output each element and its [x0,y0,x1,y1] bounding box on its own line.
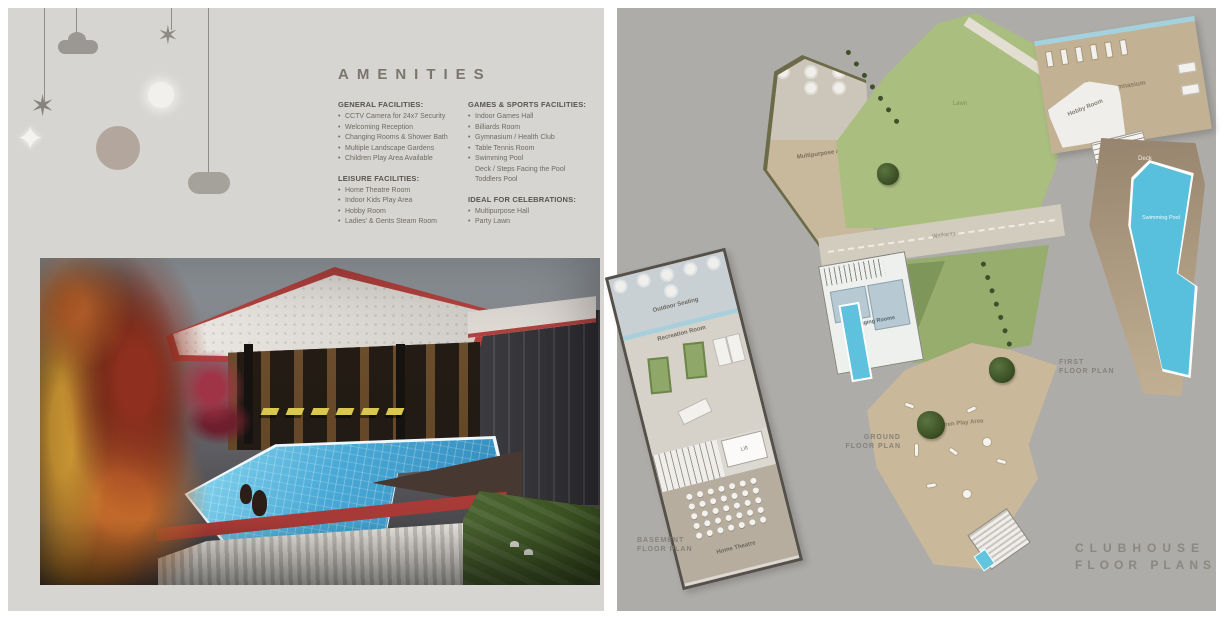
celebrations-list: Multipurpose Hall Party Lawn [468,207,608,228]
amenity-item: Multipurpose Hall [468,207,608,218]
billiards-table [677,398,712,426]
circle-ornament-icon [96,126,140,170]
table-tennis-mat [647,356,672,394]
amenity-item: Swimming Pool [468,154,608,165]
outdoor-tables [613,257,724,309]
amenity-item: Party Lawn [468,217,608,228]
amenities-title: AMENITIES [338,66,492,83]
first-caption: FIRST FLOOR PLAN [1059,358,1115,376]
amenities-column-right: GAMES & SPORTS FACILITIES: Indoor Games … [468,100,608,228]
amenity-item: CCTV Camera for 24x7 Security [338,112,466,123]
cloud-ornament-icon [188,172,230,194]
amenity-item: Home Theatre Room [338,186,466,197]
left-page: ✶ ✶ ✦ AMENITIES GENERAL FACILITIES: CCTV… [8,8,604,611]
cloud-ornament-icon [58,40,98,54]
basement-caption: BASEMENT FLOOR PLAN [637,536,693,554]
lawn-label: Lawn [935,101,985,107]
deck-label: Deck [1125,156,1165,162]
games-sports-heading: GAMES & SPORTS FACILITIES: [468,100,608,109]
first-floor-plan: Gymnasium Hobby Room Deck Swimming Pool … [1037,20,1212,398]
bench [1177,61,1196,74]
sparkle-icon: ✦ [16,122,45,156]
star-ornament-icon: ✶ [157,22,179,48]
tree-icon [877,163,899,185]
amenity-item: Gymnasium / Health Club [468,133,608,144]
bench [1181,83,1200,96]
photo-vignette [40,258,600,585]
clubhouse-pool-photo [40,258,600,585]
walkway-label: Walkway [909,228,979,244]
amenity-item: Multiple Landscape Gardens [338,144,466,155]
amenity-item: Ladies' & Gents Steam Room [338,217,466,228]
hobby-room-label: Hobby Room [1059,95,1112,122]
ground-caption: GROUND FLOOR PLAN [829,433,901,451]
lawn-upper [817,13,1057,228]
amenity-item: Indoor Games Hall [468,112,608,123]
tree-icon [989,357,1015,383]
amenities-column-left: GENERAL FACILITIES: CCTV Camera for 24x7… [338,100,466,228]
brochure-spread: ✶ ✶ ✦ AMENITIES GENERAL FACILITIES: CCTV… [0,0,1224,619]
tree-icon [917,411,945,439]
amenity-item: Welcoming Reception [338,123,466,134]
star-ornament-icon: ✶ [30,92,55,122]
leisure-facilities-heading: LEISURE FACILITIES: [338,174,466,183]
amenity-subitem: Deck / Steps Facing the Pool [468,165,608,176]
games-sports-list: Indoor Games Hall Billiards Room Gymnasi… [468,112,608,186]
amenity-item: Billiards Room [468,123,608,134]
gym-equipment [1046,40,1127,66]
leisure-facilities-list: Home Theatre Room Indoor Kids Play Area … [338,186,466,228]
amenity-item: Changing Rooms & Shower Bath [338,133,466,144]
swimming-pool-label: Swimming Pool [1139,215,1183,222]
amenity-item: Children Play Area Available [338,154,466,165]
changing-rooms-building: Changing Rooms [818,251,924,375]
children-play-area: Children Play Area [867,343,1057,569]
table-tennis-mat [683,341,708,379]
celebrations-heading: IDEAL FOR CELEBRATIONS: [468,195,608,204]
clubhouse-floor-plans-heading: CLUBHOUSE FLOOR PLANS [1075,541,1216,572]
play-equipment [897,398,1027,518]
general-facilities-heading: GENERAL FACILITIES: [338,100,466,109]
glow-dot-icon [148,82,174,108]
ground-floor-plan: Multipurpose Area Lawn Walkway Changing … [757,13,1057,573]
amenity-subitem: Toddlers Pool [468,175,608,186]
amenity-item: Indoor Kids Play Area [338,196,466,207]
general-facilities-list: CCTV Camera for 24x7 Security Welcoming … [338,112,466,165]
right-page: Outdoor Seating Recreation Room Lift Hom… [617,8,1216,611]
ornament-string [208,8,209,176]
amenity-item: Hobby Room [338,207,466,218]
amenity-item: Table Tennis Room [468,144,608,155]
